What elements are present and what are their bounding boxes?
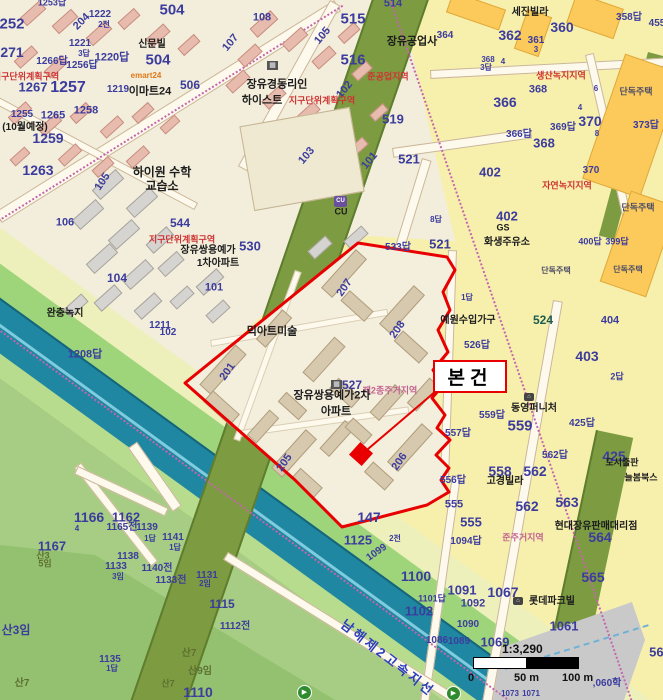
map-label: 산7 <box>161 680 174 689</box>
map-label: 360 <box>550 20 573 34</box>
scale-segment-white <box>474 658 526 668</box>
map-label: 롯데파크빌 <box>529 597 575 607</box>
subject-marker <box>349 442 373 466</box>
map-label: 108 <box>253 13 271 24</box>
map-label: 567 <box>649 646 663 659</box>
map-label: 1112전 <box>220 622 250 632</box>
map-label: 1222 <box>89 10 111 20</box>
map-label: 단독주택 <box>613 266 642 274</box>
map-label: 5임 <box>38 560 51 569</box>
map-label: 하이스트 <box>242 96 282 107</box>
map-label: 1257 <box>50 80 86 96</box>
map-label: 장유경동리인 <box>247 80 308 91</box>
map-label: 1092 <box>461 599 485 610</box>
map-label: 1094답 <box>450 537 481 547</box>
map-label: 아파트 <box>321 407 351 418</box>
map-label: 404 <box>601 316 619 327</box>
map-label: 559답 <box>479 411 505 421</box>
map-label: 장유공업사 <box>387 37 438 48</box>
map-label: emart24 <box>131 72 162 80</box>
map-label: 402 <box>479 166 501 179</box>
map-label: 514 <box>384 0 402 10</box>
map-label: 559 <box>507 419 532 434</box>
subject-leader-line <box>368 391 436 449</box>
map-label: 1263 <box>22 163 53 177</box>
map-label: 단독주택 <box>619 88 652 97</box>
scale-segment-black <box>526 658 578 668</box>
map-label: 1102 <box>405 605 433 618</box>
map-label: 교습소 <box>145 180 178 192</box>
map-label: 516 <box>340 53 365 68</box>
cu-store-icon: CU <box>334 196 347 207</box>
map-label: 1133 <box>105 562 127 572</box>
map-label: 1125 <box>344 534 372 547</box>
map-label: 1166 <box>74 510 104 524</box>
map-label: 이마트24 <box>129 87 172 98</box>
map-label: 도서출판 <box>605 459 638 468</box>
map-label: 산3임 <box>2 624 31 636</box>
map-label: 252 <box>0 17 25 32</box>
map-label: 1차아파트 <box>197 259 239 269</box>
map-label: 403 <box>575 349 598 363</box>
map-label: 1256답 <box>66 61 97 71</box>
map-label: 524 <box>533 314 553 326</box>
map-label: 1253답 <box>38 0 66 8</box>
scale-track <box>473 657 579 669</box>
map-label: 521 <box>398 153 420 166</box>
scale-tick-0: 0 <box>468 672 474 684</box>
map-label: 563 <box>555 495 578 509</box>
map-label: 366답 <box>506 130 532 140</box>
map-label: 고경빌라 <box>487 477 524 487</box>
map-label: 지구단위계획구역 <box>149 236 215 245</box>
map-label: 하이원 수학 <box>133 166 192 178</box>
scale-tick-100: 100 m <box>562 672 593 684</box>
map-label: 산9임 <box>188 667 212 677</box>
map-label: 1답 <box>144 535 156 543</box>
map-label: 늘봄북스 <box>624 474 657 483</box>
map-label: 화생주유소 <box>484 238 530 248</box>
map-label: 1165전 <box>107 523 138 533</box>
map-label: 364 <box>437 31 454 41</box>
map-label: 1258 <box>74 106 98 117</box>
map-label: 3답 <box>480 64 492 72</box>
map-label: 147 <box>357 510 380 524</box>
map-label: 455 <box>649 19 663 29</box>
subject-label-text: 본건 <box>448 363 493 390</box>
map-label: 368 <box>529 85 547 96</box>
shop-icon: ⌂ <box>524 393 534 401</box>
map-label: 366 <box>493 95 516 109</box>
map-label: 556답 <box>440 476 466 486</box>
map-label: 2전 <box>98 21 110 29</box>
map-label: 단독주택 <box>541 267 570 275</box>
map-label: 1133전 <box>156 576 187 586</box>
map-label: 2답 <box>610 373 623 382</box>
map-label: 565 <box>581 570 604 584</box>
map-label: 1답 <box>461 294 473 302</box>
map-label: 장유쌍용예가 <box>180 246 235 256</box>
map-label: 생산녹지지역 <box>536 72 586 81</box>
map-label: 1267 <box>19 81 48 94</box>
map-label: CU <box>335 208 348 217</box>
map-label: 555 <box>460 516 482 529</box>
map-label: 1091 <box>448 584 477 597</box>
map-label: 562 <box>523 464 546 478</box>
map-label: 1089 <box>448 637 470 647</box>
map-label: 562 <box>515 499 538 513</box>
map-label: 271 <box>0 45 23 59</box>
subject-label-box[interactable]: 본건 <box>433 360 507 393</box>
map-label: 557답 <box>445 429 471 439</box>
map-label: 1220답 <box>95 53 130 64</box>
map-label: 506 <box>180 79 200 91</box>
map-label: 1073 <box>501 690 519 698</box>
map-label: 신문빌 <box>138 40 166 50</box>
map-label: 1265 <box>41 111 65 122</box>
map-label: 4 <box>578 104 582 112</box>
map-label: 1답 <box>169 544 181 552</box>
map-label: 362 <box>498 28 521 42</box>
map-label: 519 <box>382 113 404 126</box>
map-label: 1110 <box>183 685 213 699</box>
map-label: 산7 <box>15 679 30 689</box>
map-label: 1115 <box>209 598 234 610</box>
map-label: 4 <box>75 525 79 533</box>
map-label: 세진빌라 <box>512 8 549 18</box>
map-label: 544 <box>170 217 190 229</box>
map-label: 1141 <box>162 533 184 543</box>
map-label: 521 <box>429 238 451 251</box>
map-label: 3임 <box>112 573 124 581</box>
map-label: 1140전 <box>142 564 173 574</box>
map-label: 1086 <box>426 636 448 646</box>
map-label: 400답 <box>578 238 601 247</box>
map-label: 104 <box>107 272 127 284</box>
map-label: 지구단위계획구역 <box>289 97 355 106</box>
map-label: 4 <box>501 58 505 66</box>
map-label: 368 <box>533 137 555 150</box>
map-label: 564 <box>588 530 611 544</box>
map-label: 완충녹지 <box>47 309 84 319</box>
map-label: 3답 <box>78 50 90 58</box>
map-label: 369답 <box>550 123 576 133</box>
map-label: 526답 <box>464 341 490 351</box>
map-label: 6 <box>594 85 598 93</box>
map-label: 믹아트미술 <box>247 327 298 338</box>
map-label: 370 <box>578 114 601 128</box>
traffic-camera-icon: ▶ <box>297 685 312 700</box>
map-label: 504 <box>145 53 170 68</box>
map-label: 2임 <box>199 580 211 588</box>
map-label: 1255 <box>11 110 33 120</box>
map-label: 555 <box>445 500 463 511</box>
map-label: 준공업지역 <box>367 73 408 82</box>
map-label: 1219 <box>107 85 129 95</box>
shop-icon: ⌂ <box>513 597 523 605</box>
map-label: 425답 <box>569 419 595 429</box>
map-label: 1090 <box>457 620 479 630</box>
map-label: 562답 <box>542 451 568 461</box>
map-label: 101 <box>205 283 223 294</box>
map-label: 102 <box>160 328 177 338</box>
map-label: 533답 <box>385 243 411 253</box>
apartment-icon: ▦ <box>267 61 278 70</box>
map-label: 358답 <box>616 13 642 23</box>
map-label: 1259 <box>32 131 63 145</box>
map-label: 준주거지역 <box>502 534 543 543</box>
map-label: 단독주택 <box>621 204 654 213</box>
scale-ratio: 1:3,290 <box>502 642 543 656</box>
map-label: 장유쌍용예가2차 <box>294 391 371 402</box>
map-label: 399답 <box>605 238 628 247</box>
map-label: 1답 <box>106 665 118 673</box>
map-label: 산7 <box>182 649 197 659</box>
map-label: 106 <box>56 218 74 229</box>
map-label: 동영퍼니처 <box>511 404 557 414</box>
map-label: 1221 <box>69 39 91 49</box>
map-label: 자연녹지지역 <box>542 182 592 191</box>
map-label: 370 <box>583 166 600 176</box>
map-label: 530 <box>239 240 261 253</box>
map-canvas[interactable]: 1253답25227120412222전12213답1220답504신문빌504… <box>0 0 663 700</box>
map-label: 1061 <box>550 620 579 633</box>
map-label: 1101답 <box>418 595 446 604</box>
apartment-icon: ▦ <box>331 380 342 389</box>
map-label: 1139 <box>136 523 158 533</box>
map-label: 1266답 <box>36 57 67 67</box>
scale-tick-50: 50 m <box>514 672 539 684</box>
map-label: 8답 <box>430 216 442 224</box>
map-label: 504 <box>159 3 184 18</box>
map-label: 2전 <box>389 535 401 543</box>
map-label: GS <box>496 224 509 233</box>
map-label: ,060학 <box>593 679 622 689</box>
map-label: 3 <box>534 46 538 54</box>
map-label: 373답 <box>633 121 659 131</box>
map-label: 1208답 <box>68 350 103 361</box>
traffic-camera-icon: ▶ <box>446 686 461 700</box>
map-label: 515 <box>340 12 365 27</box>
map-label: 1071 <box>522 690 540 698</box>
map-label: 402 <box>496 210 518 223</box>
map-label: 예원수입가구 <box>440 316 495 326</box>
map-label: 1100 <box>401 569 431 583</box>
map-label: 8 <box>595 130 599 138</box>
map-label: 제2종주거지역 <box>363 387 418 396</box>
